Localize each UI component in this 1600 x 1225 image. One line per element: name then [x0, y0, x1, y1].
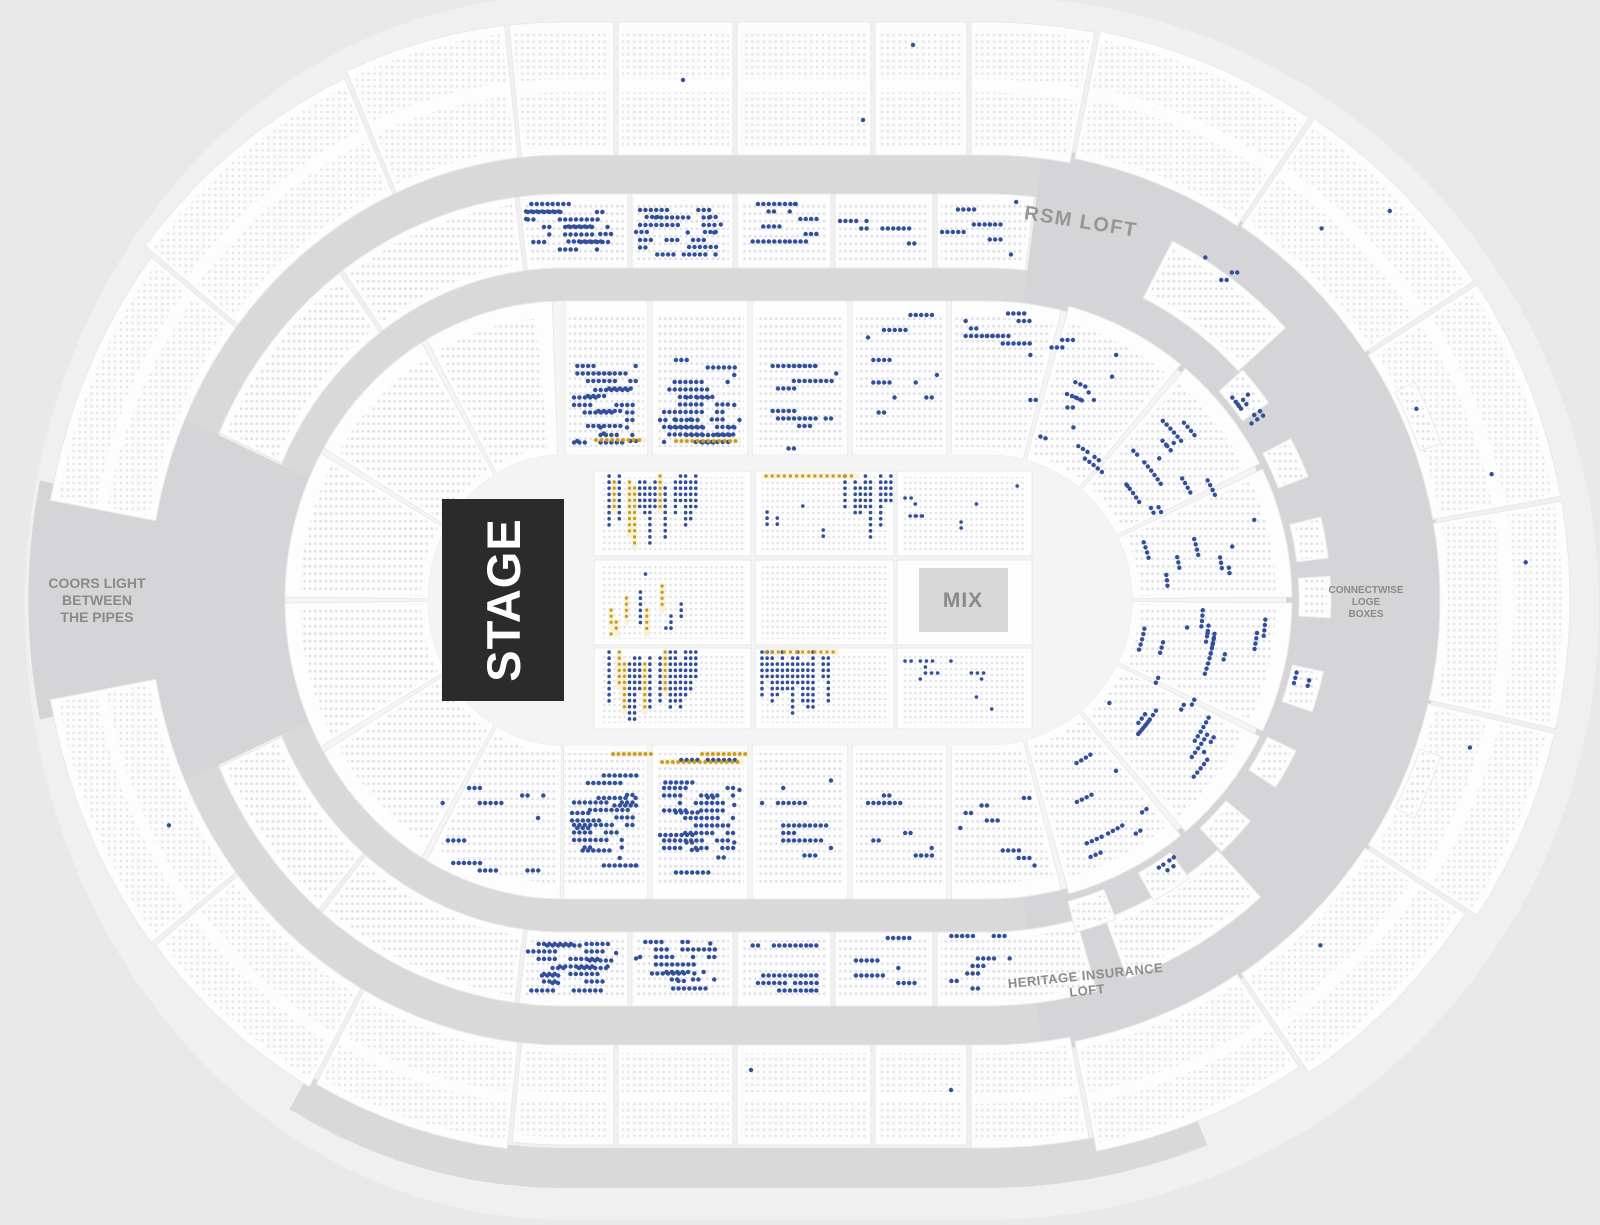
svg-text:COORS LIGHTBETWEENTHE PIPES: COORS LIGHTBETWEENTHE PIPES	[48, 575, 146, 625]
svg-text:MIX: MIX	[943, 589, 983, 612]
svg-text:STAGE: STAGE	[477, 518, 530, 681]
